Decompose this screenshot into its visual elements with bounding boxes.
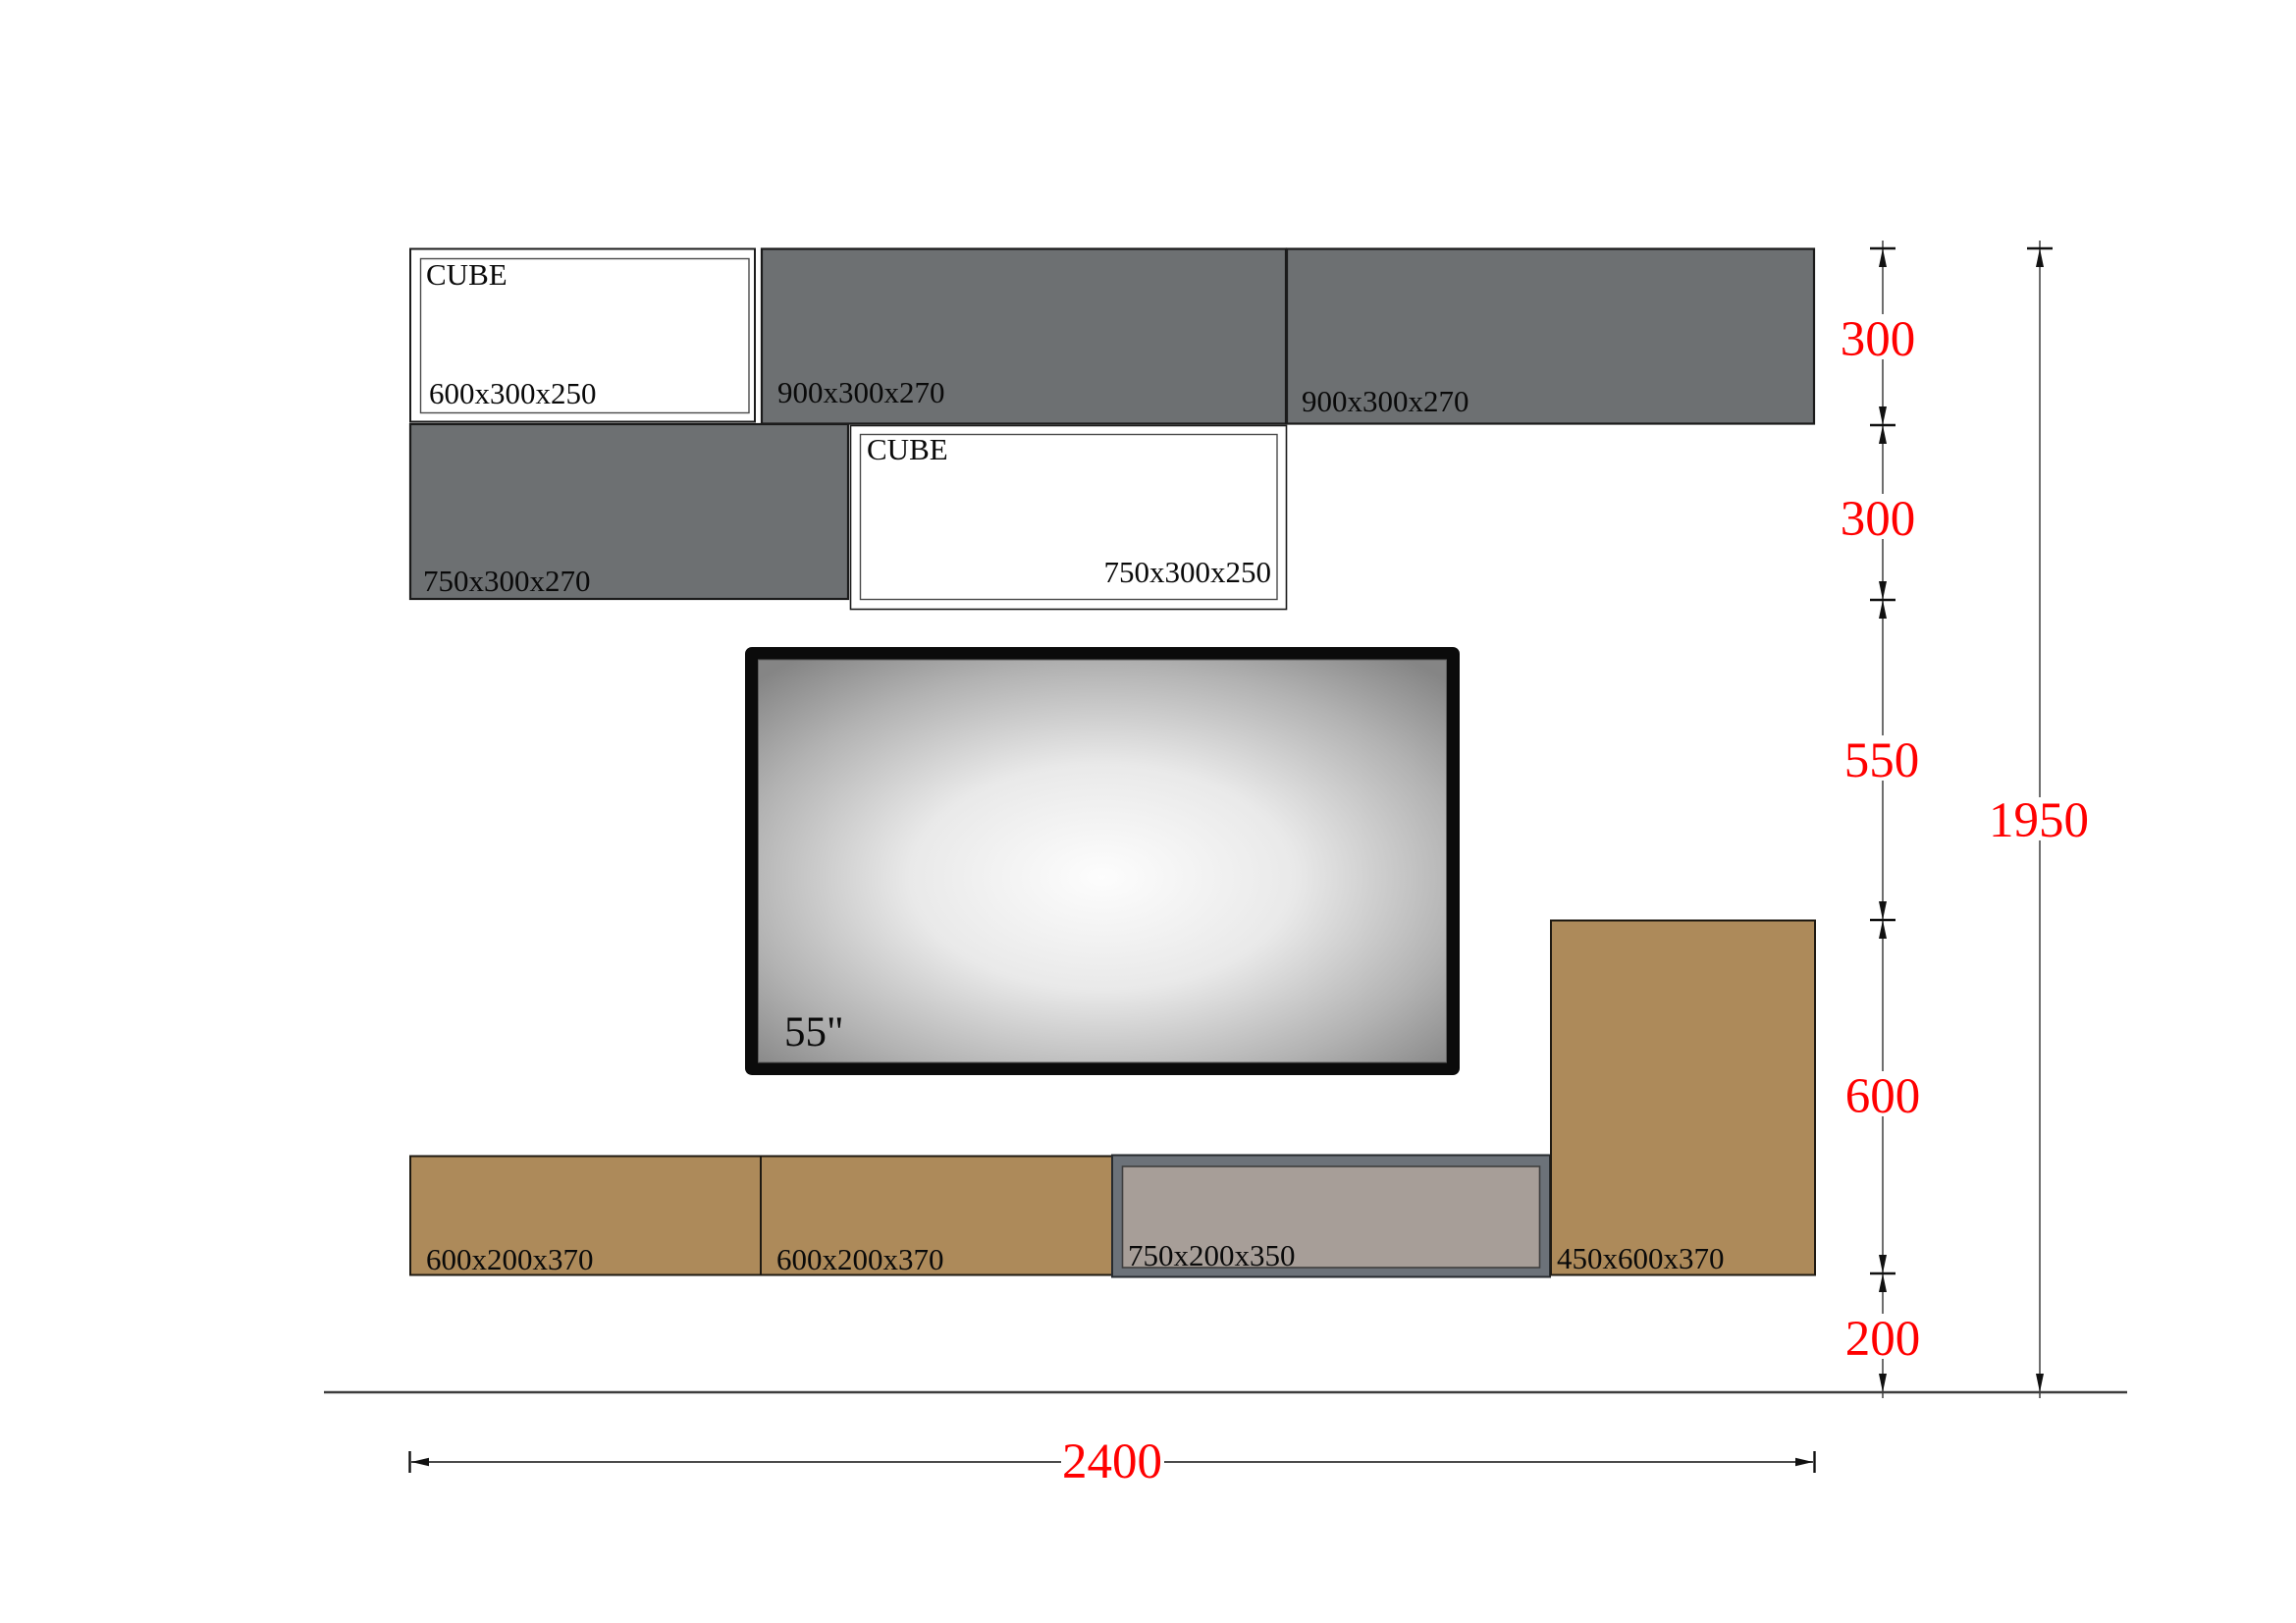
svg-text:750x200x350: 750x200x350 (1128, 1238, 1296, 1272)
svg-text:600: 600 (1845, 1069, 1921, 1124)
svg-text:200: 200 (1845, 1312, 1921, 1367)
svg-text:550: 550 (1844, 733, 1920, 788)
svg-text:600x300x250: 600x300x250 (429, 376, 597, 410)
svg-text:600x200x370: 600x200x370 (426, 1242, 594, 1276)
svg-text:750x300x270: 750x300x270 (423, 564, 591, 598)
svg-text:900x300x270: 900x300x270 (777, 375, 945, 409)
svg-text:CUBE: CUBE (426, 257, 507, 292)
svg-text:55": 55" (784, 1009, 844, 1055)
svg-text:300: 300 (1841, 312, 1916, 367)
svg-text:CUBE: CUBE (867, 432, 948, 466)
svg-text:300: 300 (1841, 492, 1916, 547)
svg-text:2400: 2400 (1062, 1434, 1162, 1489)
svg-text:450x600x370: 450x600x370 (1557, 1241, 1725, 1275)
svg-text:750x300x250: 750x300x250 (1104, 555, 1272, 589)
svg-text:600x200x370: 600x200x370 (776, 1242, 944, 1276)
svg-text:1950: 1950 (1989, 793, 2089, 848)
svg-text:900x300x270: 900x300x270 (1302, 384, 1469, 418)
